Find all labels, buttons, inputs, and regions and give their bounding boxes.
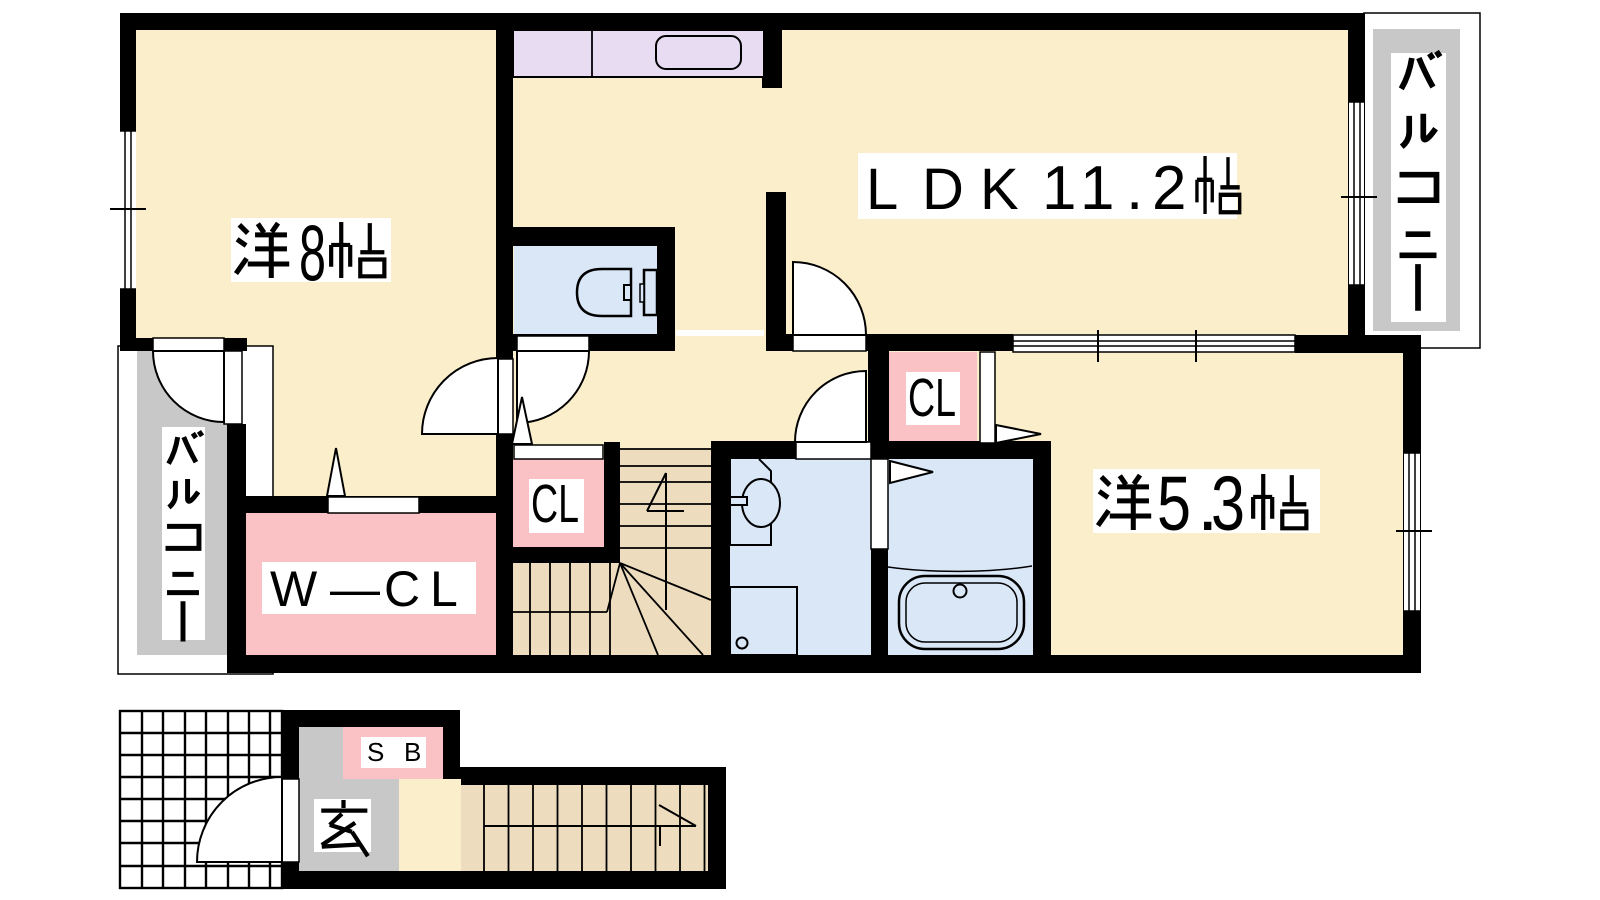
svg-text:3: 3	[1211, 461, 1245, 547]
svg-text:8: 8	[299, 208, 326, 297]
svg-text:LDK: LDK	[866, 157, 1019, 222]
svg-text:11.2: 11.2	[1042, 154, 1186, 223]
svg-text:CL: CL	[531, 474, 579, 534]
svg-text:CL: CL	[908, 368, 956, 428]
svg-text:5: 5	[1157, 461, 1191, 547]
svg-text:W—CL: W—CL	[270, 561, 458, 617]
